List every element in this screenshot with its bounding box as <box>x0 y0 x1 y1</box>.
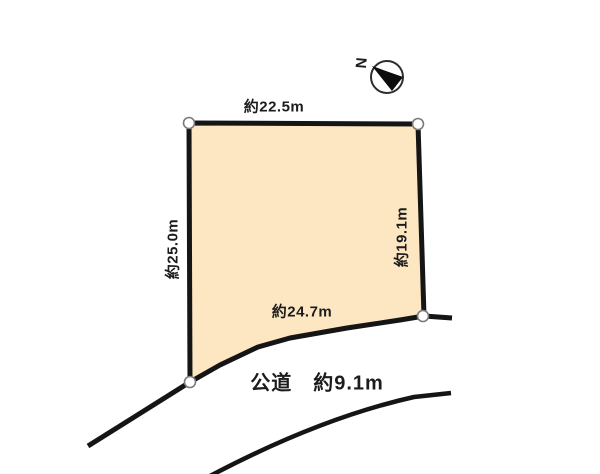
road-edge-lower <box>210 393 451 474</box>
corner-marker-bottom-right <box>418 311 429 322</box>
top-edge-length-label: 約22.5m <box>244 96 305 117</box>
left-edge-length-label: 約25.0m <box>162 219 183 280</box>
diagram-canvas: N <box>0 0 600 474</box>
corner-marker-top-right <box>413 119 424 130</box>
bottom-edge-length-label: 約24.7m <box>272 301 333 322</box>
corner-marker-top-left <box>184 118 195 129</box>
right-edge-length-label: 約19.1m <box>391 207 412 268</box>
corner-marker-bottom-left <box>185 377 196 388</box>
land-plot-diagram: N 約22.5m 約25.0m 約19.1m 約24.7m 公道 約9.1m <box>0 0 600 474</box>
parcel-shape <box>189 123 424 382</box>
compass: N <box>352 57 403 93</box>
road-width-label: 公道 約9.1m <box>250 367 384 396</box>
north-label: N <box>352 57 370 69</box>
road-edge-upper-left <box>88 382 190 446</box>
